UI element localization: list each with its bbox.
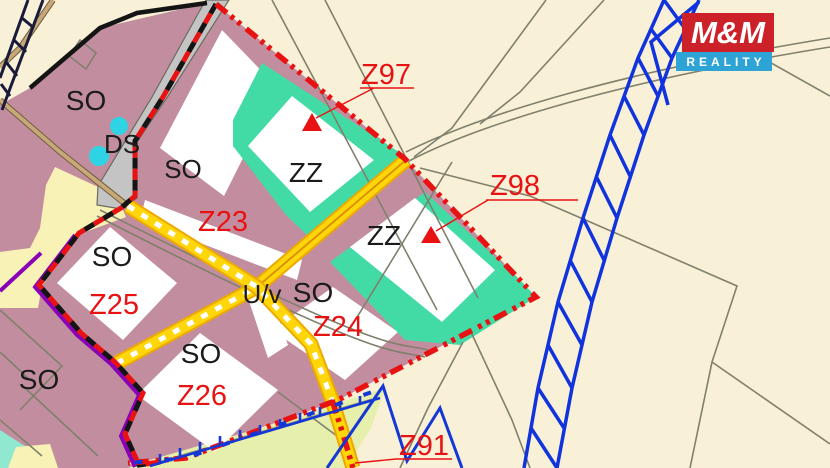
label-so-upper: SO [164, 154, 202, 184]
label-so-z26: SO [181, 338, 221, 369]
map-canvas: SO DS SO ZZ ZZ SO Z25 Z23 U/v SO Z24 SO … [0, 0, 830, 468]
label-zz-upper: ZZ [289, 157, 323, 188]
label-z25: Z25 [89, 289, 139, 321]
label-so-z25: SO [92, 241, 132, 272]
label-z98: Z98 [490, 170, 540, 202]
label-so-bottomleft: SO [19, 364, 59, 395]
logo-brand-text: M&M [691, 15, 766, 50]
label-so-center: SO [293, 277, 333, 308]
zoning-map: SO DS SO ZZ ZZ SO Z25 Z23 U/v SO Z24 SO … [0, 0, 830, 468]
logo-mm-reality: M&M REALITY [676, 13, 774, 71]
label-so-topleft: SO [66, 85, 106, 116]
label-ds: DS [104, 129, 140, 159]
label-z91: Z91 [399, 430, 449, 462]
label-z97: Z97 [361, 59, 411, 91]
label-zz-lower: ZZ [367, 220, 401, 251]
label-z24: Z24 [313, 311, 363, 343]
logo-tagline-text: REALITY [686, 55, 765, 69]
label-uv: U/v [243, 279, 282, 309]
label-z23: Z23 [198, 206, 248, 238]
label-z26: Z26 [177, 380, 227, 412]
